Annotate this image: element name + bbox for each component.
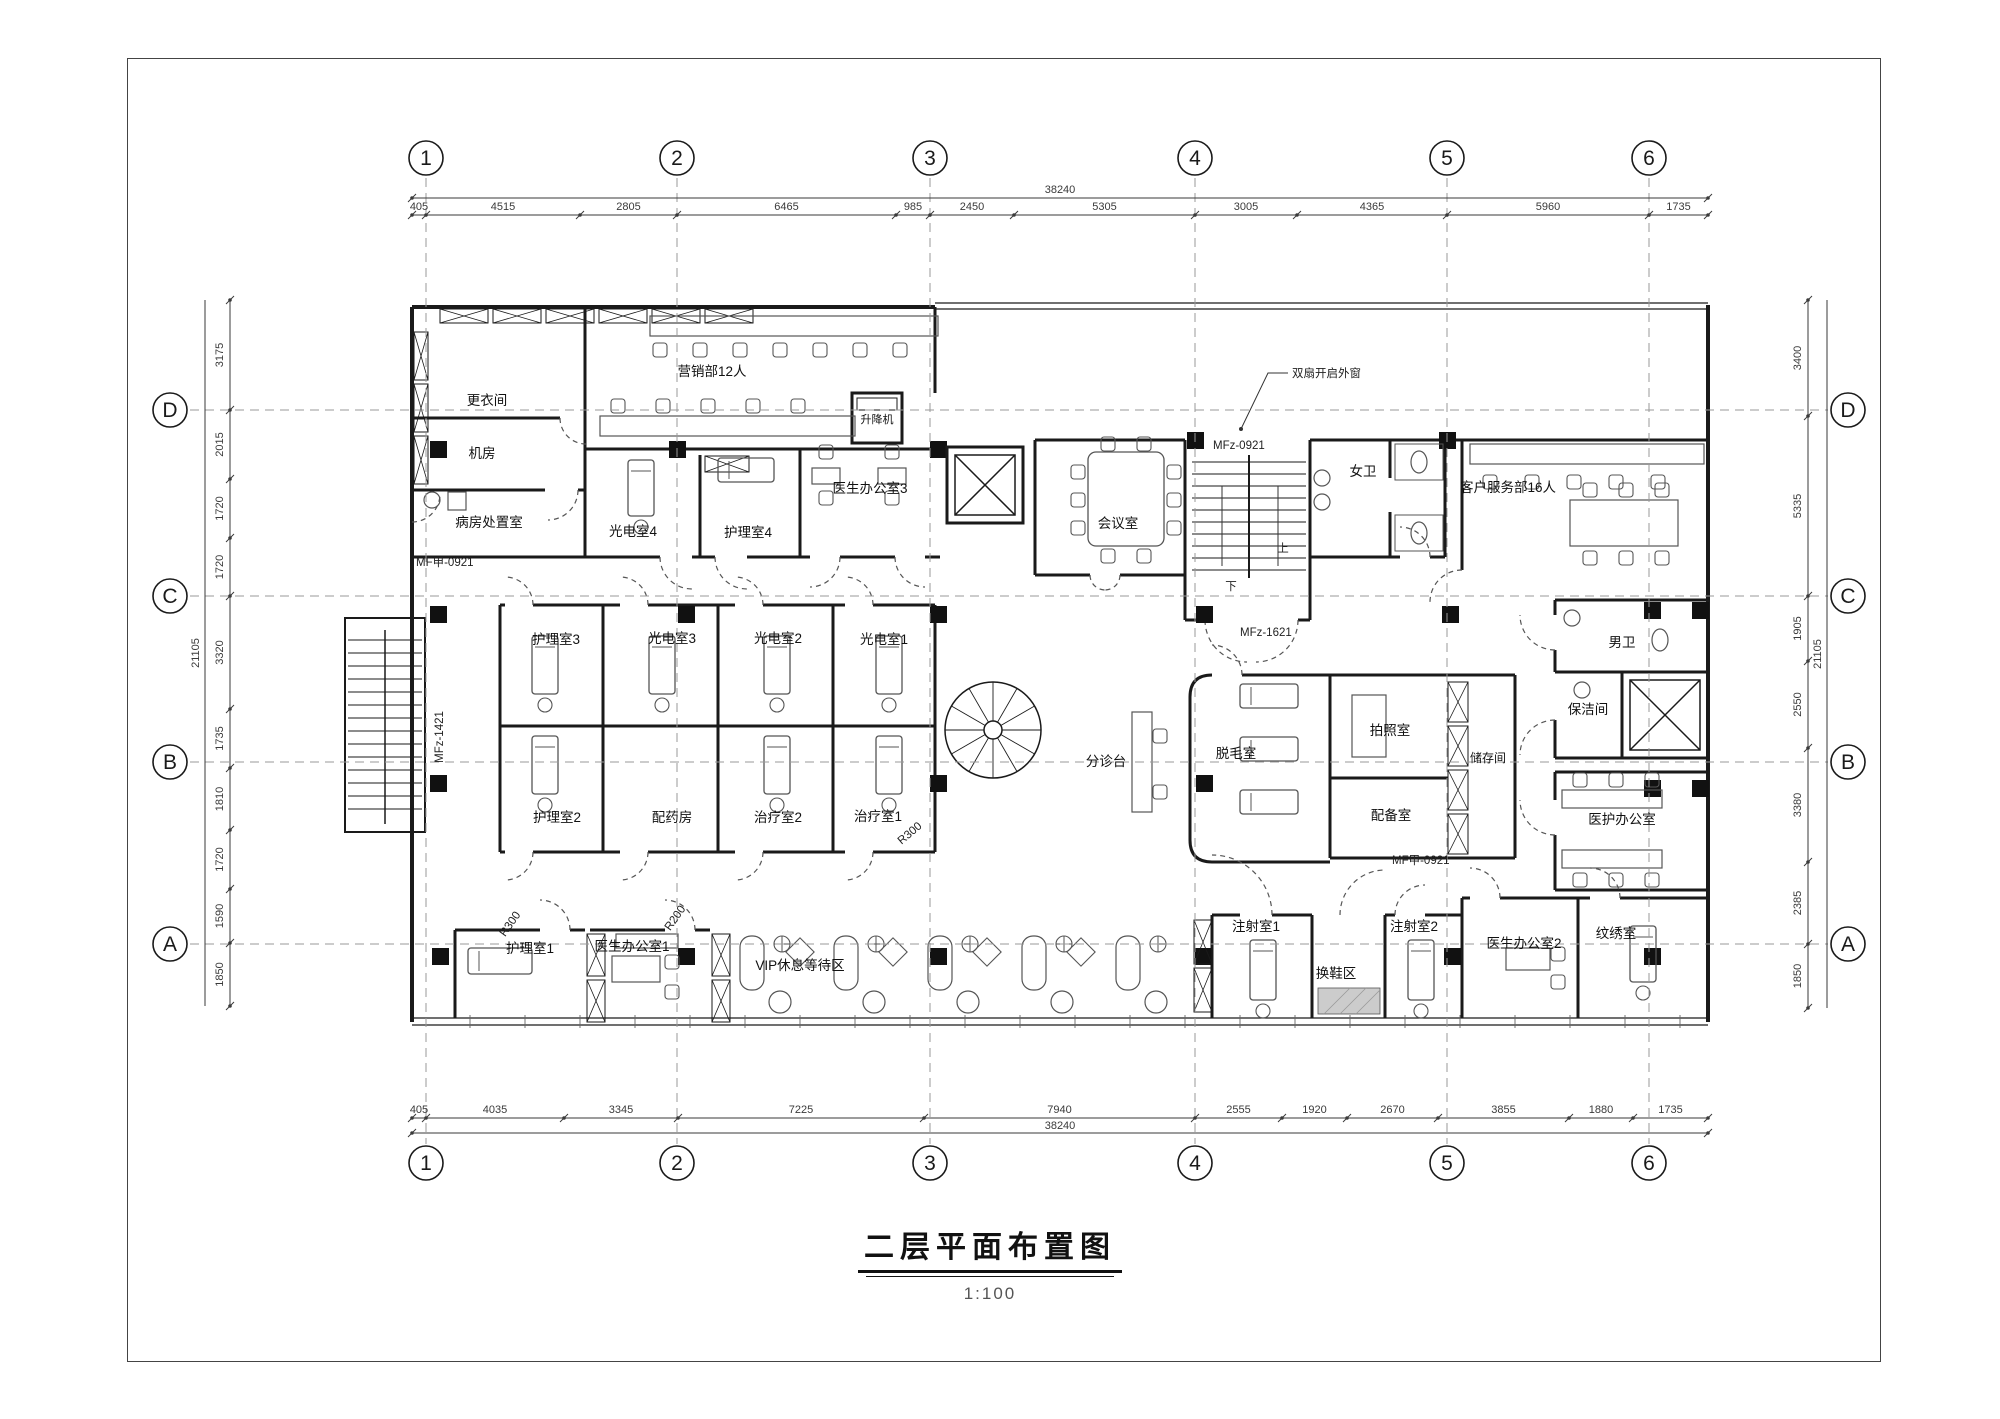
room-label: 女卫 bbox=[1350, 463, 1377, 479]
bed bbox=[876, 736, 902, 794]
chair bbox=[1645, 873, 1659, 887]
hatch-x bbox=[414, 332, 428, 380]
room-label: 光电室2 bbox=[754, 630, 802, 646]
room-label: 注射室1 bbox=[1232, 918, 1280, 934]
door-arc bbox=[845, 577, 873, 605]
room-label: 分诊台 bbox=[1086, 754, 1127, 769]
chair bbox=[653, 343, 667, 357]
title-block: 二层平面布置图 1:100 bbox=[845, 1222, 1135, 1304]
column bbox=[930, 775, 947, 792]
dim-right-value: 3400 bbox=[1792, 346, 1804, 370]
glazing-ticks bbox=[470, 1015, 1680, 1028]
annotation-text: MF甲-0921 bbox=[416, 557, 474, 569]
meeting-table bbox=[1088, 452, 1164, 546]
room-label: VIP休息等待区 bbox=[755, 957, 844, 973]
hatch-x bbox=[440, 309, 488, 323]
grid-bubble-label-B: B bbox=[163, 751, 177, 774]
door-arc bbox=[1520, 615, 1555, 650]
grid-bubble-label-1: 1 bbox=[420, 147, 432, 170]
dim-bottom-value: 1735 bbox=[1658, 1104, 1682, 1116]
door-arc bbox=[735, 852, 763, 880]
floor-plan: 112233445566DDCCBBAA40545152805646598524… bbox=[0, 0, 2000, 1414]
magazine-table bbox=[973, 938, 1001, 966]
room-label: 注射室2 bbox=[1390, 918, 1438, 934]
door-arc bbox=[1430, 570, 1462, 602]
column bbox=[430, 606, 447, 623]
grid-bubble-label-5: 5 bbox=[1441, 1152, 1453, 1175]
column bbox=[1644, 602, 1661, 619]
chair bbox=[1137, 549, 1151, 563]
dim-left-value: 3320 bbox=[214, 640, 226, 664]
stool bbox=[770, 698, 784, 712]
room-label: 病房处置室 bbox=[455, 514, 523, 530]
basin bbox=[1564, 610, 1580, 626]
room-label: 治疗室1 bbox=[854, 808, 902, 824]
chair bbox=[893, 343, 907, 357]
room-label: 护理室3 bbox=[532, 631, 580, 647]
room-label: 医生办公室2 bbox=[1486, 935, 1561, 951]
dim-bottom-value: 3855 bbox=[1491, 1104, 1515, 1116]
chair bbox=[1071, 521, 1085, 535]
elevator-x bbox=[955, 455, 1015, 515]
annotation-leader bbox=[1241, 373, 1288, 429]
door-arc bbox=[1212, 855, 1272, 915]
spiral-tread bbox=[1001, 735, 1035, 755]
furniture bbox=[468, 316, 1704, 1018]
dim-bottom-value: 7940 bbox=[1047, 1104, 1071, 1116]
stool bbox=[1414, 1004, 1428, 1018]
elevator-x bbox=[1630, 680, 1700, 750]
room-label: 医生办公室1 bbox=[594, 938, 669, 954]
magazine-table bbox=[1067, 938, 1095, 966]
chair bbox=[1567, 475, 1581, 489]
chair bbox=[656, 399, 670, 413]
dim-top-value: 6465 bbox=[774, 201, 798, 213]
chair bbox=[746, 399, 760, 413]
dim-top-value: 405 bbox=[410, 201, 428, 213]
chair bbox=[1655, 551, 1669, 565]
chair bbox=[1609, 873, 1623, 887]
annotation-text: R300 bbox=[498, 910, 524, 939]
dim-top-value: 5305 bbox=[1092, 201, 1116, 213]
dim-bottom-value: 7225 bbox=[789, 1104, 813, 1116]
grid-bubble-label-4: 4 bbox=[1189, 147, 1201, 170]
door-arc bbox=[1340, 870, 1385, 915]
walls bbox=[412, 303, 1708, 1025]
column bbox=[1692, 780, 1709, 797]
wc-stall bbox=[1395, 515, 1443, 551]
grid-bubble-label-1: 1 bbox=[420, 1152, 432, 1175]
magazine-table bbox=[879, 938, 907, 966]
door-arc bbox=[810, 557, 840, 587]
column bbox=[1644, 948, 1661, 965]
column bbox=[678, 948, 695, 965]
door-arc bbox=[1520, 800, 1555, 835]
desk bbox=[1562, 850, 1662, 868]
annotation-text: R200 bbox=[663, 904, 689, 933]
chair bbox=[1583, 483, 1597, 497]
dim-right-total-value: 21105 bbox=[1812, 639, 1824, 669]
grid-bubble-label-A: A bbox=[1841, 933, 1855, 956]
basin bbox=[1574, 682, 1590, 698]
basin bbox=[1314, 494, 1330, 510]
bed bbox=[1408, 940, 1434, 1000]
room-label: 保洁间 bbox=[1568, 702, 1609, 717]
room-label: 治疗室2 bbox=[754, 809, 802, 825]
hatch-x bbox=[712, 934, 730, 976]
desk bbox=[650, 316, 938, 336]
dim-bottom-value: 1920 bbox=[1302, 1104, 1326, 1116]
column bbox=[930, 948, 947, 965]
stool bbox=[1636, 986, 1650, 1000]
column bbox=[432, 948, 449, 965]
door-arc bbox=[1395, 885, 1425, 915]
room-label: 男卫 bbox=[1609, 635, 1636, 650]
door-arc bbox=[560, 418, 586, 444]
dim-left-value: 1720 bbox=[214, 496, 226, 520]
chair bbox=[733, 343, 747, 357]
chair bbox=[1583, 551, 1597, 565]
dim-left-value: 1810 bbox=[214, 787, 226, 811]
chair bbox=[1551, 975, 1565, 989]
desk bbox=[1570, 500, 1678, 546]
hatch-x bbox=[493, 309, 541, 323]
annotation-text: 双扇开启外窗 bbox=[1292, 366, 1361, 380]
chair bbox=[1619, 483, 1633, 497]
door-arc bbox=[505, 852, 533, 880]
room-label: 升降机 bbox=[861, 412, 894, 426]
side-table bbox=[957, 991, 979, 1013]
chair bbox=[1071, 493, 1085, 507]
grid-bubble-label-A: A bbox=[163, 933, 177, 956]
grid-bubble-label-2: 2 bbox=[671, 1152, 683, 1175]
chair bbox=[1609, 475, 1623, 489]
door-arc bbox=[715, 557, 747, 589]
room-label: 光电室4 bbox=[609, 523, 657, 539]
door-arc bbox=[1520, 720, 1555, 755]
floor-plan-svg: 112233445566DDCCBBAA40545152805646598524… bbox=[0, 0, 2000, 1414]
spiral-tread bbox=[951, 735, 985, 755]
dim-top-total-value: 38240 bbox=[1045, 184, 1076, 196]
side-table bbox=[1051, 991, 1073, 1013]
annotation-text: MFz-1421 bbox=[434, 711, 446, 763]
door-arc bbox=[845, 852, 873, 880]
room-label: 护理室2 bbox=[533, 809, 581, 825]
desk bbox=[612, 956, 660, 982]
grid-bubble-label-D: D bbox=[1840, 399, 1855, 422]
chair bbox=[1167, 493, 1181, 507]
drawing-title: 二层平面布置图 bbox=[858, 1222, 1122, 1273]
dim-bottom-total-value: 38240 bbox=[1045, 1120, 1076, 1132]
sink-unit bbox=[448, 492, 466, 510]
chair bbox=[791, 399, 805, 413]
dim-top-value: 3005 bbox=[1234, 201, 1258, 213]
column bbox=[1442, 606, 1459, 623]
interior-walls bbox=[412, 307, 1708, 1018]
dim-right-value: 3380 bbox=[1792, 793, 1804, 817]
hatch-x bbox=[1448, 682, 1468, 722]
hatch-x bbox=[1448, 726, 1468, 766]
grid-bubble-label-D: D bbox=[162, 399, 177, 422]
door-arc bbox=[505, 577, 533, 605]
room-label: 储存间 bbox=[1470, 750, 1506, 765]
column bbox=[678, 606, 695, 623]
dim-top-value: 2805 bbox=[616, 201, 640, 213]
desk bbox=[600, 416, 855, 436]
side-table bbox=[1145, 991, 1167, 1013]
hatch-x bbox=[1448, 770, 1468, 810]
dim-bottom-value: 405 bbox=[410, 1104, 428, 1116]
shoe-area-hatch bbox=[1318, 988, 1380, 1014]
room-label: 光电室3 bbox=[648, 630, 696, 646]
toilet bbox=[1411, 522, 1427, 544]
chair bbox=[1573, 873, 1587, 887]
bed bbox=[1250, 940, 1276, 1000]
door-arc bbox=[620, 852, 648, 880]
grid-bubble-label-6: 6 bbox=[1643, 1152, 1655, 1175]
spiral-tread bbox=[998, 688, 1018, 722]
desk bbox=[1470, 444, 1704, 464]
column bbox=[930, 441, 947, 458]
annotation-text: MFz-1621 bbox=[1240, 627, 1292, 639]
column bbox=[1692, 602, 1709, 619]
door-arc bbox=[660, 557, 692, 589]
room-label: 医生办公室3 bbox=[832, 480, 907, 496]
stool bbox=[1256, 1004, 1270, 1018]
side-table bbox=[863, 991, 885, 1013]
curtain-wall-lines bbox=[412, 303, 1708, 1025]
chair bbox=[1167, 521, 1181, 535]
bed bbox=[1240, 684, 1298, 708]
room-label: 脱毛室 bbox=[1216, 745, 1257, 761]
annotation-text: 上 bbox=[1277, 542, 1289, 555]
room-labels: 更衣间营销部12人升降机机房病房处置室光电室4护理室4医生办公室3会议室女卫客户… bbox=[455, 364, 1656, 981]
grid-bubble-label-C: C bbox=[1840, 585, 1855, 608]
grid-bubble-label-5: 5 bbox=[1441, 147, 1453, 170]
door-arc bbox=[1105, 575, 1120, 590]
room-label: 客户服务部16人 bbox=[1460, 479, 1557, 495]
room-label: 机房 bbox=[469, 446, 496, 461]
chair bbox=[1153, 785, 1167, 799]
grid-bubble-label-4: 4 bbox=[1189, 1152, 1201, 1175]
dim-top-value: 1735 bbox=[1666, 201, 1690, 213]
spiral-tread bbox=[951, 706, 985, 726]
hatch-x bbox=[1448, 814, 1468, 854]
dim-left-value: 1735 bbox=[214, 726, 226, 750]
door-arc bbox=[735, 577, 763, 605]
bed bbox=[718, 458, 774, 482]
drawing-scale: 1:100 bbox=[845, 1284, 1135, 1304]
dim-top-value: 4365 bbox=[1360, 201, 1384, 213]
spiral-tread bbox=[969, 738, 989, 772]
door-arc bbox=[620, 577, 648, 605]
side-table bbox=[769, 991, 791, 1013]
column bbox=[430, 775, 447, 792]
room-label: 护理室1 bbox=[506, 940, 554, 956]
stool bbox=[538, 698, 552, 712]
annotation-leader-dot bbox=[1239, 427, 1243, 431]
dim-bottom-value: 2555 bbox=[1226, 1104, 1250, 1116]
dim-top-value: 2450 bbox=[960, 201, 984, 213]
title-underline bbox=[866, 1276, 1114, 1277]
column bbox=[1195, 948, 1212, 965]
column bbox=[430, 441, 447, 458]
room-label: 光电室1 bbox=[860, 631, 908, 647]
chair bbox=[819, 491, 833, 505]
annotation-text: 下 bbox=[1225, 581, 1237, 593]
hatch-x bbox=[1194, 968, 1212, 1012]
exterior-walls bbox=[412, 305, 1708, 1022]
dim-left-value: 2015 bbox=[214, 432, 226, 456]
stool bbox=[882, 698, 896, 712]
chair bbox=[1651, 475, 1665, 489]
door-arc bbox=[1470, 868, 1500, 898]
grid-bubble-label-B: B bbox=[1841, 751, 1855, 774]
dim-right-value: 1905 bbox=[1792, 616, 1804, 640]
hatch-x bbox=[599, 309, 647, 323]
dim-top-value: 985 bbox=[904, 201, 922, 213]
column bbox=[930, 606, 947, 623]
bed bbox=[532, 736, 558, 794]
curved-wall bbox=[1190, 675, 1330, 862]
toilet bbox=[1652, 629, 1668, 651]
room-label: 纹绣室 bbox=[1596, 925, 1637, 941]
basin bbox=[1314, 470, 1330, 486]
chair bbox=[693, 343, 707, 357]
grid-bubble-label-6: 6 bbox=[1643, 147, 1655, 170]
dim-right-value: 1850 bbox=[1792, 964, 1804, 988]
hatch-x bbox=[546, 309, 594, 323]
spiral-tread bbox=[998, 738, 1018, 772]
chair bbox=[813, 343, 827, 357]
chair bbox=[1167, 465, 1181, 479]
dim-top-value: 4515 bbox=[491, 201, 515, 213]
chair bbox=[773, 343, 787, 357]
dim-top-value: 5960 bbox=[1536, 201, 1560, 213]
chair bbox=[1655, 483, 1669, 497]
spiral-center bbox=[984, 721, 1002, 739]
chair bbox=[1609, 773, 1623, 787]
chair bbox=[819, 445, 833, 459]
chair bbox=[853, 343, 867, 357]
desk bbox=[1506, 948, 1550, 970]
stool bbox=[655, 698, 669, 712]
dim-right-value: 2385 bbox=[1792, 891, 1804, 915]
column bbox=[1196, 775, 1213, 792]
chair bbox=[885, 445, 899, 459]
bed bbox=[764, 736, 790, 794]
hatch-x bbox=[587, 980, 605, 1022]
chair bbox=[611, 399, 625, 413]
column bbox=[1196, 606, 1213, 623]
stairs bbox=[345, 455, 1306, 832]
spiral-tread bbox=[969, 688, 989, 722]
grid-bubbles: 112233445566DDCCBBAA bbox=[153, 141, 1865, 1180]
room-label: 护理室4 bbox=[724, 524, 772, 540]
chair bbox=[1573, 773, 1587, 787]
annotation-text: MF甲-0921 bbox=[1392, 855, 1450, 867]
door-arc bbox=[548, 490, 578, 520]
bed bbox=[628, 460, 654, 516]
room-label: 拍照室 bbox=[1370, 722, 1411, 738]
hatch-x bbox=[414, 436, 428, 484]
grid-bubble-label-C: C bbox=[162, 585, 177, 608]
bed bbox=[1240, 790, 1298, 814]
dim-right-value: 5335 bbox=[1792, 494, 1804, 518]
dim-bottom-value: 2670 bbox=[1380, 1104, 1404, 1116]
room-label: 配药房 bbox=[652, 810, 693, 825]
lift-door bbox=[857, 398, 897, 410]
room-label: 更衣间 bbox=[467, 393, 508, 408]
chair bbox=[701, 399, 715, 413]
dim-bottom-value: 3345 bbox=[609, 1104, 633, 1116]
grid-lines bbox=[190, 178, 1828, 1144]
spiral-tread bbox=[1001, 706, 1035, 726]
dim-right-value: 2550 bbox=[1792, 692, 1804, 716]
dim-left-value: 1590 bbox=[214, 904, 226, 928]
door-arc bbox=[1212, 645, 1242, 675]
wc-stall bbox=[1395, 444, 1443, 480]
chair bbox=[1619, 551, 1633, 565]
room-label: 医护办公室 bbox=[1588, 811, 1656, 827]
dim-bottom-value: 1880 bbox=[1589, 1104, 1613, 1116]
room-label: 会议室 bbox=[1098, 515, 1139, 531]
dim-left-value: 3175 bbox=[214, 343, 226, 367]
annotation-text: R300 bbox=[896, 820, 925, 847]
door-arc bbox=[540, 900, 570, 930]
room-label: 配备室 bbox=[1371, 807, 1412, 823]
room-label: 营销部12人 bbox=[677, 364, 747, 379]
page: { "page": { "title": "二层平面布置图", "scale_l… bbox=[0, 0, 2000, 1414]
room-label: 换鞋区 bbox=[1316, 966, 1357, 981]
toilet bbox=[1411, 451, 1427, 473]
hatch-x bbox=[712, 980, 730, 1022]
chair bbox=[1071, 465, 1085, 479]
chair bbox=[1153, 729, 1167, 743]
grid-bubble-label-2: 2 bbox=[671, 147, 683, 170]
annotation-text: MFz-0921 bbox=[1213, 440, 1265, 452]
spiral-stair bbox=[945, 682, 1041, 778]
dim-left-total-value: 21105 bbox=[190, 638, 202, 668]
dim-left-value: 1720 bbox=[214, 847, 226, 871]
grid-bubble-label-3: 3 bbox=[924, 147, 936, 170]
chair bbox=[1101, 549, 1115, 563]
dim-left-value: 1720 bbox=[214, 555, 226, 579]
grid-bubble-label-3: 3 bbox=[924, 1152, 936, 1175]
columns bbox=[430, 432, 1709, 965]
door-arc bbox=[895, 557, 925, 587]
dimensions: 4054515280564659852450530530054365596017… bbox=[190, 184, 1827, 1137]
dim-bottom-value: 4035 bbox=[483, 1104, 507, 1116]
door-arc bbox=[1090, 575, 1105, 590]
dim-left-value: 1850 bbox=[214, 962, 226, 986]
